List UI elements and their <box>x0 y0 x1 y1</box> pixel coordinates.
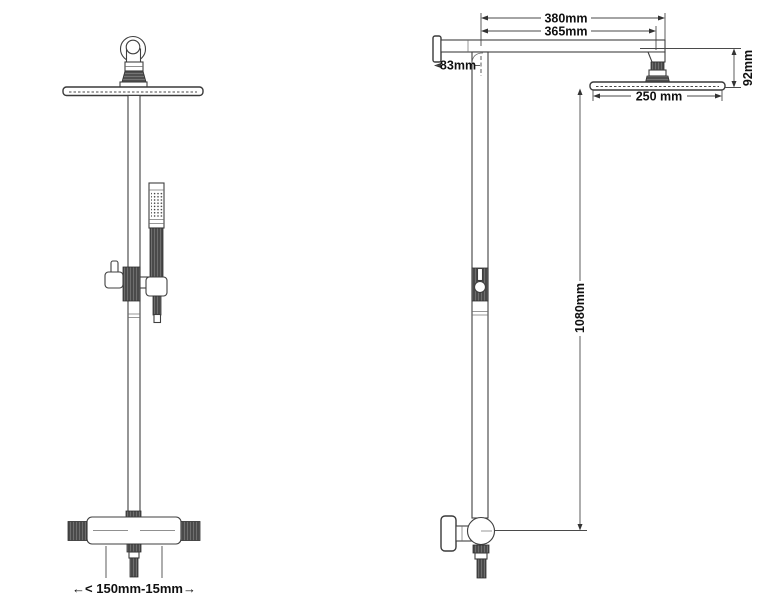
knurled-nut <box>122 71 146 82</box>
valve-spacing-label: ←< 150mm-15mm→ <box>72 581 196 596</box>
left-wall-connector <box>68 522 87 541</box>
thermostatic-valve-front <box>68 511 200 577</box>
hand-shower-holder <box>146 277 167 296</box>
hand-shower <box>146 183 167 323</box>
arm-to-head-label: 365mm <box>544 25 587 39</box>
head-drop-label: 92mm <box>741 50 755 86</box>
head-connector-side <box>645 52 670 85</box>
slider-bracket-side <box>472 268 488 301</box>
shower-arm <box>441 40 665 52</box>
hose-connector <box>153 296 161 315</box>
shower-head-disc <box>63 87 203 96</box>
overhead-shower-head <box>63 87 203 96</box>
thermostatic-valve-side <box>441 516 495 578</box>
dimension-column-height: 1080mm <box>495 89 587 531</box>
ring-inner <box>126 40 140 54</box>
side-view: 380mm 365mm 83mm 92mm <box>433 12 755 579</box>
front-view: ←< 150mm-15mm→ <box>63 37 203 597</box>
outlet-ring-side <box>473 545 489 553</box>
hose-tip <box>154 315 161 323</box>
slider-block <box>123 267 140 301</box>
dimension-head-diameter: 250 mm <box>593 90 722 104</box>
right-wall-connector <box>181 522 200 541</box>
wall-offset-label: 83mm <box>440 59 476 73</box>
slider-lever <box>105 272 123 288</box>
shower-column-pipe-front <box>128 96 140 513</box>
hand-shower-spray-face <box>151 192 163 218</box>
slider-slot <box>478 269 483 281</box>
hand-shower-handle <box>150 228 163 278</box>
outlet-neck <box>129 552 139 558</box>
shower-column-technical-drawing: ←< 150mm-15mm→ <box>0 0 776 600</box>
outlet-spout <box>130 558 138 577</box>
slider-knob-side <box>475 282 486 293</box>
column-height-label: 1080mm <box>573 283 587 333</box>
slider-bracket-front <box>105 261 149 301</box>
wall-flange-bottom <box>441 516 456 551</box>
hanging-ring <box>121 37 146 65</box>
outlet-ring <box>127 544 141 552</box>
outlet-spout-side <box>477 559 486 578</box>
head-connector-front <box>120 62 147 88</box>
outlet-neck-side <box>475 553 487 559</box>
arm-total-label: 380mm <box>544 12 587 26</box>
head-diameter-label: 250 mm <box>636 90 683 104</box>
